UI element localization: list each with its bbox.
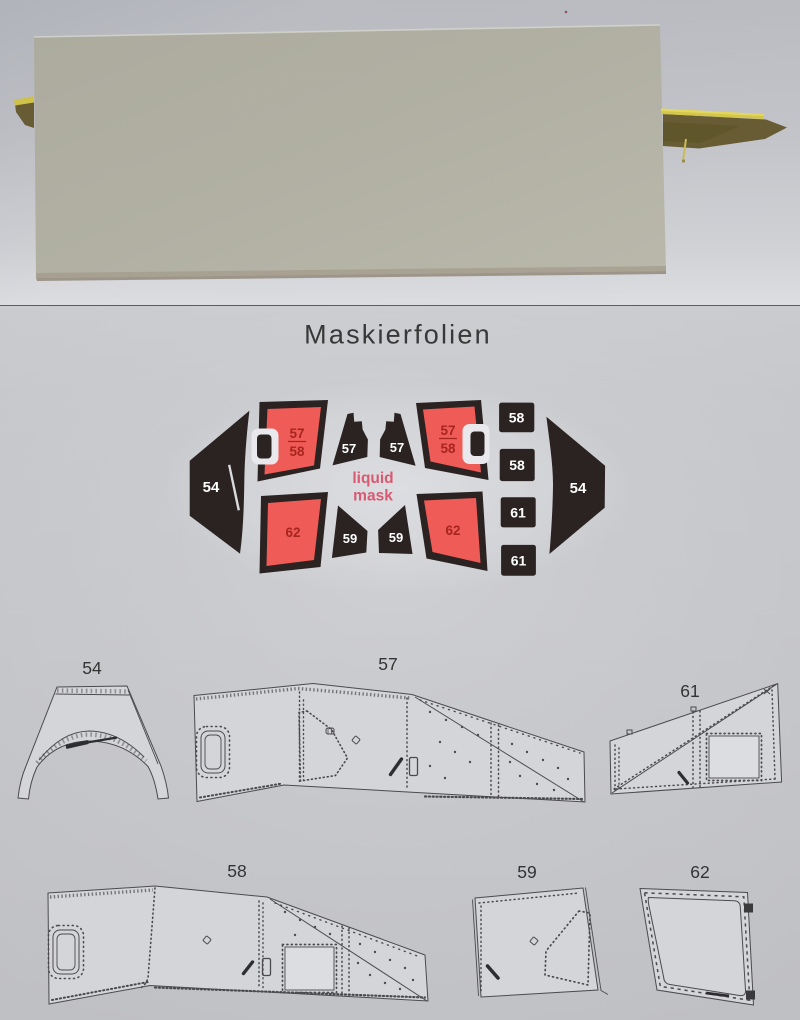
svg-text:Maskierfolien: Maskierfolien xyxy=(304,320,492,350)
svg-text:58: 58 xyxy=(289,444,305,459)
svg-text:57: 57 xyxy=(440,423,455,438)
svg-text:54: 54 xyxy=(82,658,102,678)
svg-text:54: 54 xyxy=(570,480,587,497)
svg-text:57: 57 xyxy=(378,654,397,674)
svg-text:57: 57 xyxy=(289,426,304,441)
svg-text:liquid: liquid xyxy=(352,470,393,487)
svg-text:61: 61 xyxy=(511,553,527,569)
svg-text:mask: mask xyxy=(353,488,393,505)
svg-text:61: 61 xyxy=(680,681,699,701)
svg-text:58: 58 xyxy=(227,861,246,881)
svg-text:62: 62 xyxy=(445,523,460,538)
svg-text:58: 58 xyxy=(509,457,525,473)
svg-text:59: 59 xyxy=(517,862,536,882)
svg-text:58: 58 xyxy=(509,410,525,426)
svg-text:59: 59 xyxy=(389,530,403,545)
svg-text:59: 59 xyxy=(343,531,357,546)
svg-text:57: 57 xyxy=(390,440,404,455)
svg-text:61: 61 xyxy=(510,505,526,521)
svg-text:54: 54 xyxy=(203,479,220,496)
svg-text:58: 58 xyxy=(440,441,456,456)
svg-text:57: 57 xyxy=(342,441,356,456)
svg-text:62: 62 xyxy=(285,525,300,540)
svg-text:62: 62 xyxy=(690,862,709,882)
